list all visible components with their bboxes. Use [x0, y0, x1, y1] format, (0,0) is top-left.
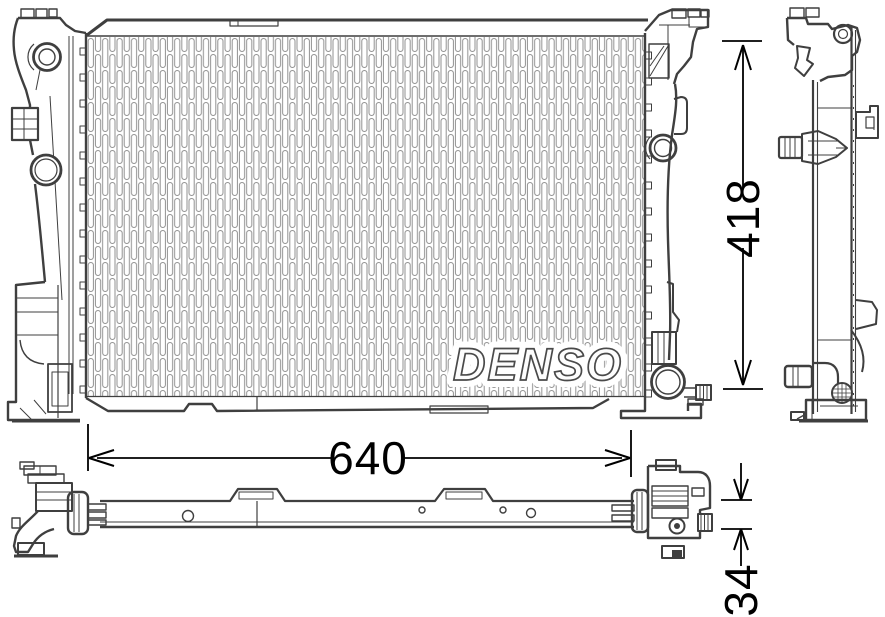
side-lower-clip	[856, 300, 877, 329]
right-tank-edge	[668, 84, 677, 360]
right-upper-mounting-bracket	[645, 9, 709, 84]
dimension-width: 640	[88, 424, 631, 484]
core-bottom-header	[86, 397, 645, 414]
brand-watermark: DENSO DENSO	[453, 339, 623, 390]
right-tank-notches	[646, 52, 652, 397]
side-rails	[813, 27, 856, 414]
right-foot	[621, 398, 703, 418]
bottom-right-fitting	[612, 460, 712, 558]
radiator-technical-drawing: DENSO DENSO	[0, 0, 885, 617]
drawing-canvas: DENSO DENSO	[0, 0, 885, 617]
left-side-lug	[12, 108, 38, 155]
right-lower-bracket	[652, 282, 679, 364]
side-upper-clip	[856, 106, 878, 138]
left-tank	[8, 9, 86, 421]
core-top-header	[87, 20, 648, 36]
side-top-bracket	[787, 8, 860, 81]
dimension-width-label: 640	[328, 432, 408, 484]
drain-plug	[652, 366, 712, 401]
bottom-strip	[100, 489, 634, 527]
brand-watermark-text: DENSO	[453, 339, 623, 390]
inlet-port	[31, 155, 61, 185]
bottom-drain-knob	[698, 514, 712, 531]
dimension-depth-label: 34	[715, 563, 767, 616]
side-view	[779, 8, 878, 421]
side-hook	[795, 46, 813, 76]
dimension-height-label: 418	[717, 178, 769, 258]
bottom-left-fitting	[12, 462, 106, 556]
dimension-depth: 34	[715, 463, 767, 617]
front-view: DENSO DENSO	[8, 9, 711, 421]
filler-neck-boss	[34, 44, 61, 71]
dimension-height: 418	[717, 41, 769, 389]
